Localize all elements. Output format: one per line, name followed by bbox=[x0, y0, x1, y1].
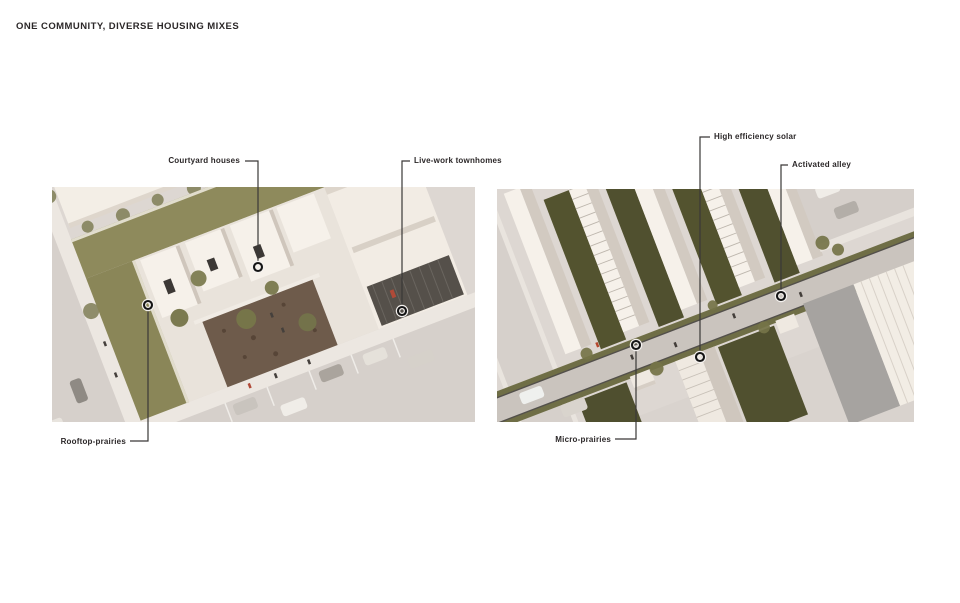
page-title: ONE COMMUNITY, DIVERSE HOUSING MIXES bbox=[16, 21, 239, 32]
render-neighborhood bbox=[497, 189, 914, 422]
callout-label-micro-prairies: Micro-prairies bbox=[511, 435, 611, 445]
render-courtyard-block bbox=[52, 187, 475, 422]
callout-label-courtyard-houses: Courtyard houses bbox=[140, 156, 240, 166]
callout-label-activated-alley: Activated alley bbox=[792, 160, 851, 170]
neighborhood-render-graphic bbox=[497, 189, 914, 422]
callout-label-live-work-townhomes: Live-work townhomes bbox=[414, 156, 502, 166]
presentation-slide: ONE COMMUNITY, DIVERSE HOUSING MIXES bbox=[0, 0, 960, 603]
callout-label-high-efficiency-solar: High efficiency solar bbox=[714, 132, 796, 142]
courtyard-render-graphic bbox=[52, 187, 475, 422]
callout-label-rooftop-prairies: Rooftop-prairies bbox=[26, 437, 126, 447]
